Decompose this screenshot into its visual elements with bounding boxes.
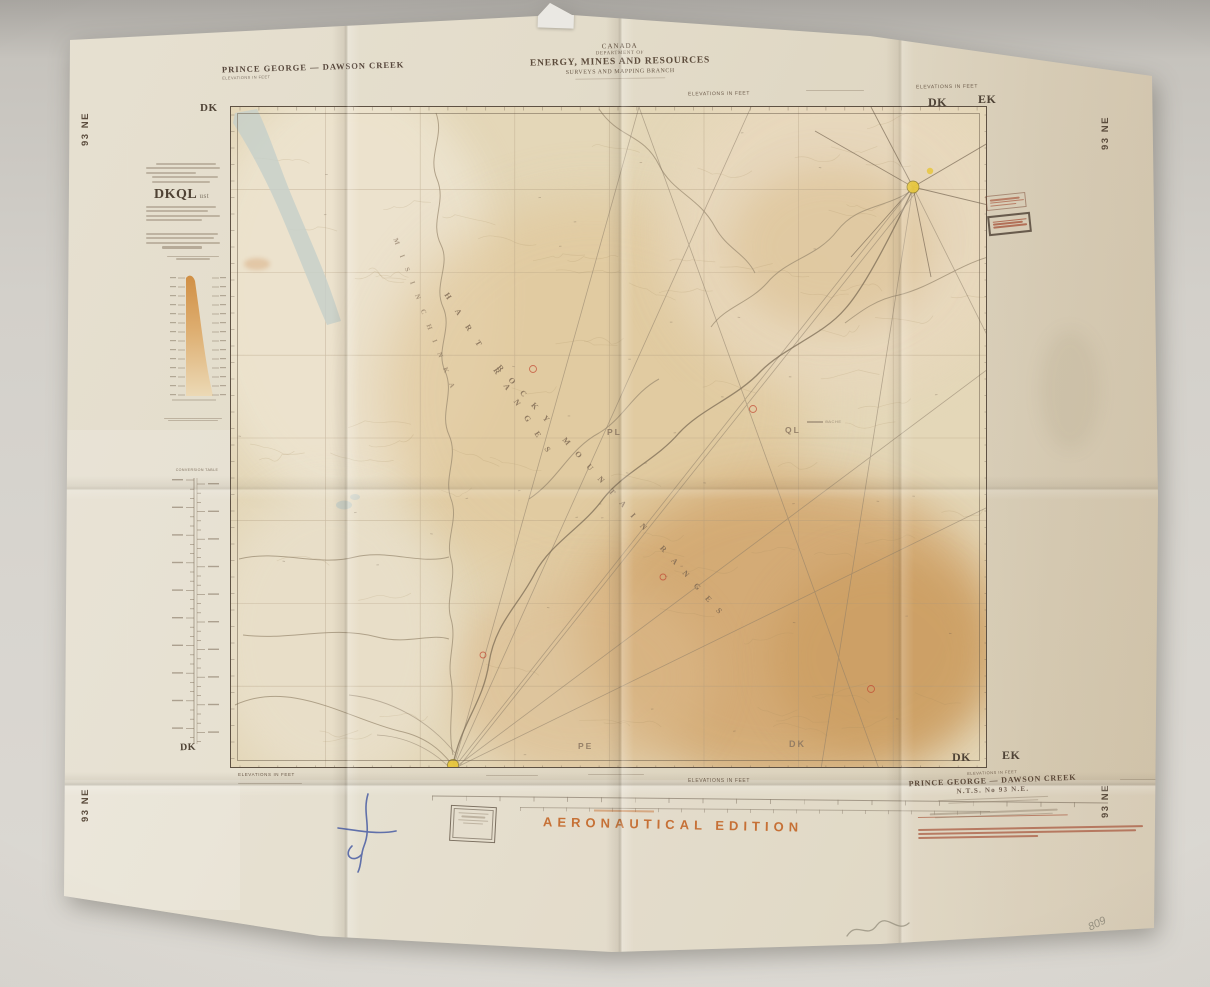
corner-code-bottom-right-ek: EK [1002,748,1020,763]
hypso-title-line [176,258,210,259]
corner-code-top-left: DK [200,102,218,114]
block-label-pe: PE [578,741,593,751]
title-smallprint-line [575,77,665,80]
footer-smallprint [238,783,302,784]
elevations-note-bottom-left: ELEVATIONS IN FEET [238,772,295,777]
declination-stamp-box [449,805,497,843]
cache-label-text: CACHE [825,419,842,424]
hypsometric-tint-scale [158,256,228,422]
prince-george-city-marker [448,760,459,769]
conversion-scale-svg [162,472,232,750]
legend-line [162,246,202,249]
series-title-block: PRINCE GEORGE — DAWSON CREEK ELEVATIONS … [222,59,405,80]
footer-smallprint [1120,779,1160,780]
stamp-line [461,816,485,819]
hypso-caption-line [168,420,218,421]
legend-line [152,176,218,178]
corner-code-bottom-right-dk: DK [952,750,971,765]
cache-settlement-label: CACHE [807,419,842,424]
notice-line [918,835,1038,838]
photo-scene: CANADA DEPARTMENT OF ENERGY, MINES AND R… [0,0,1210,987]
legend-panel: DKQL ust [146,160,234,252]
block-label-ql: QL [785,425,801,435]
hypso-profile-svg [158,262,228,412]
tape-tab [538,1,575,28]
block-label-pl: PL [607,427,622,437]
legend-line [146,233,218,235]
stamp-line [459,812,489,815]
cache-label-dash [807,421,823,423]
legend-line [146,215,220,217]
map-title-block: CANADA DEPARTMENT OF ENERGY, MINES AND R… [455,39,786,82]
map-sheet-paper: CANADA DEPARTMENT OF ENERGY, MINES AND R… [0,0,1210,987]
sheet-number-right-top: 93 NE [1100,116,1111,150]
footer-smallprint [588,774,644,775]
margin-annotation-box-2 [987,212,1032,236]
conversion-table-title: CONVERSION TABLE [162,468,232,472]
legend-line [156,163,216,165]
dawson-creek-city-marker [907,181,919,193]
margin-annotation-box-1 [985,192,1026,211]
smallprint-top [806,90,864,91]
map-linework-svg [231,107,987,768]
legend-line [146,206,216,208]
blue-ink-scribble [330,790,414,874]
panel-code-text: DKQL [154,187,197,202]
edition-smallprint [594,809,654,812]
legend-line [152,181,210,183]
paper-stain [1040,330,1100,450]
paper-wrap: CANADA DEPARTMENT OF ENERGY, MINES AND R… [0,0,1210,987]
conversion-table: CONVERSION TABLE [162,468,232,755]
legend-line [146,219,202,221]
legend-line [146,237,214,239]
hypso-caption-line [164,418,222,419]
legend-line [146,242,220,244]
footer-smallprint [486,775,538,776]
block-label-dk: DK [789,739,806,749]
legend-line [146,167,220,169]
sheet-number-left-top: 93 NE [80,112,91,146]
legend-line [146,172,196,174]
pencil-scribble [843,912,915,950]
legend-line [146,210,208,212]
bottom-right-title-block: ELEVATIONS IN FEET PRINCE GEORGE — DAWSO… [877,766,1109,823]
sheet-number-left-bottom: 93 NE [80,788,91,822]
elevations-note-bottom-center: ELEVATIONS IN FEET [688,778,750,784]
pencil-number: 809 [1086,915,1108,934]
legend-panel-code: DKQL ust [154,187,234,203]
stamp-line [458,819,488,822]
notice-line [918,829,1136,834]
lake-williston [233,109,360,510]
corner-code-top-right-dk: DK [928,95,947,110]
hypso-title-line [167,256,219,257]
map-face: MISINCHINKA HART RANGES ROCKY MOUNTAIN R… [230,106,987,768]
stamp-line [463,822,483,824]
elevations-note-top-center: ELEVATIONS IN FEET [688,91,750,98]
corner-code-top-right-ek: EK [978,92,996,107]
elevations-note-top-right: ELEVATIONS IN FEET [916,84,978,91]
edition-label: AERONAUTICAL EDITION [543,814,803,834]
